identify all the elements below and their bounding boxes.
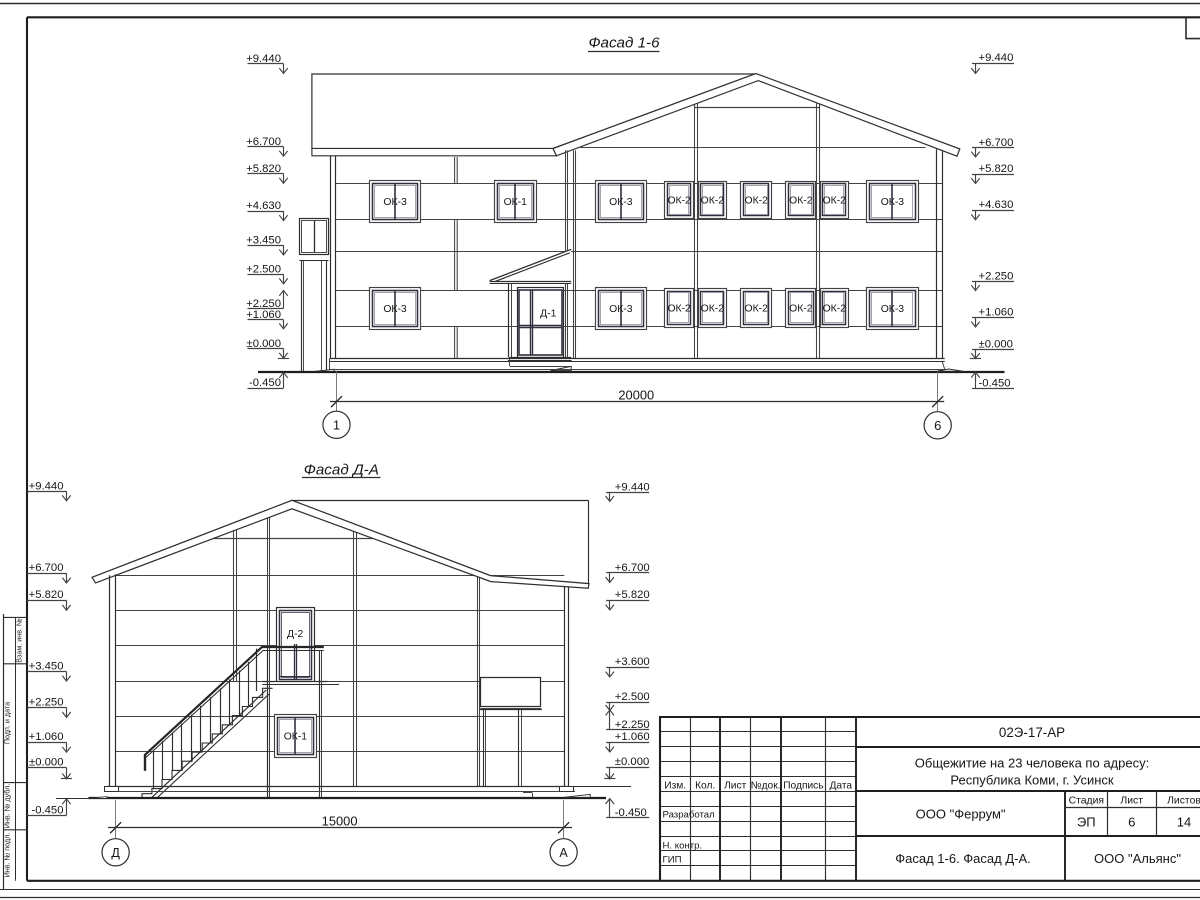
- svg-text:Фасад Д-А: Фасад Д-А: [304, 461, 379, 478]
- svg-text:02Э-17-АР: 02Э-17-АР: [999, 725, 1065, 740]
- svg-text:+9.440: +9.440: [29, 480, 64, 492]
- svg-text:Республика Коми, г. Усинск: Республика Коми, г. Усинск: [950, 772, 1113, 787]
- svg-text:Подп. и дата: Подп. и дата: [3, 702, 12, 744]
- svg-text:Д-1: Д-1: [540, 309, 556, 320]
- svg-text:ОК-3: ОК-3: [609, 304, 633, 315]
- svg-text:±0.000: ±0.000: [29, 756, 63, 768]
- svg-text:Д-2: Д-2: [287, 629, 303, 640]
- svg-text:+3.450: +3.450: [29, 660, 64, 672]
- svg-text:-0.450: -0.450: [979, 377, 1011, 389]
- svg-text:+3.450: +3.450: [246, 235, 281, 247]
- svg-text:+3.600: +3.600: [615, 656, 650, 668]
- svg-text:15000: 15000: [322, 813, 358, 828]
- svg-text:ОК-1: ОК-1: [504, 197, 528, 208]
- svg-text:6: 6: [1128, 815, 1135, 830]
- svg-text:1: 1: [333, 418, 340, 433]
- svg-text:+1.060: +1.060: [615, 731, 650, 743]
- svg-text:ОК-3: ОК-3: [881, 197, 905, 208]
- svg-text:ЭП: ЭП: [1077, 815, 1096, 830]
- svg-text:6: 6: [934, 418, 941, 433]
- svg-text:ОК-2: ОК-2: [789, 304, 813, 315]
- svg-text:Дата: Дата: [830, 780, 853, 791]
- svg-text:±0.000: ±0.000: [979, 339, 1013, 351]
- svg-text:+4.630: +4.630: [246, 200, 281, 212]
- svg-text:Д: Д: [111, 846, 120, 860]
- svg-text:А: А: [559, 846, 568, 860]
- svg-text:Фасад 1-6. Фасад Д-А.: Фасад 1-6. Фасад Д-А.: [895, 851, 1031, 866]
- svg-text:Фасад 1-6: Фасад 1-6: [588, 35, 660, 52]
- svg-text:Листов: Листов: [1167, 796, 1200, 807]
- svg-text:ОК-2: ОК-2: [701, 196, 725, 207]
- svg-text:ОК-2: ОК-2: [823, 196, 847, 207]
- svg-text:+2.250: +2.250: [979, 271, 1014, 283]
- svg-text:Изм.: Изм.: [664, 780, 686, 791]
- svg-text:+2.500: +2.500: [246, 264, 281, 276]
- svg-text:Стадия: Стадия: [1069, 796, 1104, 807]
- svg-text:ОК-2: ОК-2: [745, 304, 769, 315]
- svg-text:ОК-2: ОК-2: [701, 304, 725, 315]
- svg-text:+4.630: +4.630: [979, 199, 1014, 211]
- svg-text:№док.: №док.: [751, 780, 781, 791]
- svg-text:+2.250: +2.250: [29, 696, 64, 708]
- svg-text:Лист: Лист: [1120, 796, 1143, 807]
- svg-text:Общежитие на 23 человека по ад: Общежитие на 23 человека по адресу:: [915, 756, 1149, 771]
- svg-text:14: 14: [1177, 815, 1191, 830]
- svg-text:ООО "Альянс": ООО "Альянс": [1094, 851, 1181, 866]
- svg-text:Н. контр.: Н. контр.: [663, 840, 703, 851]
- svg-text:ОК-2: ОК-2: [823, 304, 847, 315]
- svg-text:+1.060: +1.060: [979, 307, 1014, 319]
- svg-text:ОК-3: ОК-3: [383, 304, 407, 315]
- svg-text:+9.440: +9.440: [615, 482, 650, 494]
- svg-text:Кол.: Кол.: [695, 780, 715, 791]
- svg-text:-0.450: -0.450: [249, 377, 281, 389]
- svg-text:±0.000: ±0.000: [615, 756, 649, 768]
- svg-text:ОК-3: ОК-3: [383, 197, 407, 208]
- svg-text:ОК-2: ОК-2: [745, 196, 769, 207]
- svg-text:+5.820: +5.820: [979, 163, 1014, 175]
- svg-text:ОК-1: ОК-1: [284, 732, 308, 743]
- svg-text:+1.060: +1.060: [29, 731, 64, 743]
- svg-text:ОК-2: ОК-2: [667, 304, 691, 315]
- svg-text:+5.820: +5.820: [615, 589, 650, 601]
- svg-text:ОК-2: ОК-2: [789, 196, 813, 207]
- svg-text:+9.440: +9.440: [979, 52, 1014, 64]
- svg-text:-0.450: -0.450: [31, 804, 63, 816]
- svg-text:Инв. № подл.: Инв. № подл.: [3, 833, 12, 878]
- svg-text:ГИП: ГИП: [663, 854, 682, 865]
- svg-text:ОК-3: ОК-3: [881, 304, 905, 315]
- svg-text:Подпись: Подпись: [783, 780, 823, 791]
- svg-text:Лист: Лист: [724, 780, 746, 791]
- svg-text:Инв. № дубл.: Инв. № дубл.: [3, 784, 12, 829]
- svg-text:ОК-2: ОК-2: [667, 196, 691, 207]
- svg-text:+2.500: +2.500: [615, 691, 650, 703]
- svg-text:20000: 20000: [618, 387, 654, 402]
- svg-text:+6.700: +6.700: [29, 562, 64, 574]
- svg-text:ОК-3: ОК-3: [609, 197, 633, 208]
- svg-text:+5.820: +5.820: [29, 589, 64, 601]
- svg-text:Взам. инв. №: Взам. инв. №: [15, 618, 24, 663]
- svg-text:ООО "Феррум": ООО "Феррум": [916, 806, 1006, 821]
- svg-text:Разработал: Разработал: [663, 810, 715, 821]
